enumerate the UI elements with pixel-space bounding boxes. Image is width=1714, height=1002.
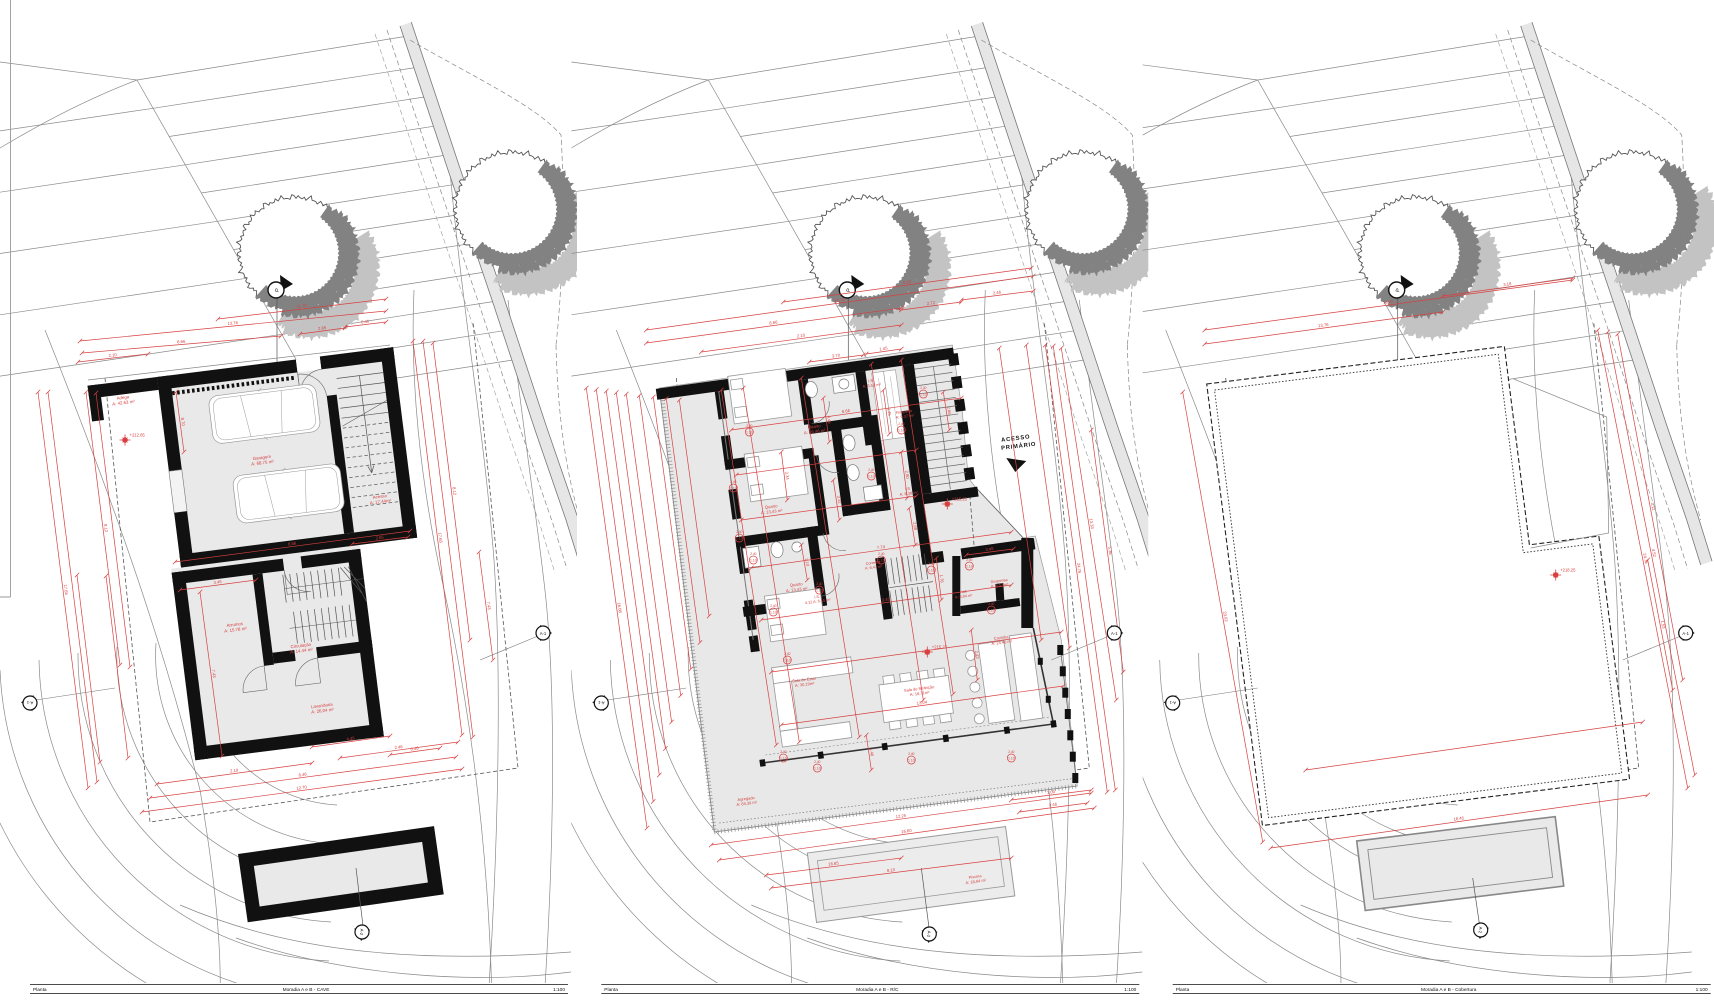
- svg-text:2.40: 2.40: [908, 752, 914, 756]
- svg-text:Moradia A e B - CAVE: Moradia A e B - CAVE: [283, 987, 330, 993]
- svg-text:A-1: A-1: [26, 700, 34, 706]
- svg-text:1.76: 1.76: [939, 574, 945, 583]
- svg-text:2.40: 2.40: [736, 530, 742, 534]
- svg-text:Planta: Planta: [604, 987, 618, 993]
- svg-text:1.10: 1.10: [750, 559, 757, 563]
- svg-text:A-2: A-2: [1478, 927, 1484, 935]
- svg-text:A-2: A-2: [926, 931, 932, 939]
- svg-text:Planta: Planta: [33, 987, 47, 993]
- svg-text:1:100: 1:100: [553, 987, 565, 993]
- svg-text:1.10: 1.10: [898, 429, 905, 433]
- svg-text:A-1: A-1: [1169, 700, 1177, 706]
- svg-text:1.10: 1.10: [780, 757, 787, 761]
- svg-text:2.40: 2.40: [1008, 750, 1014, 754]
- svg-text:1.10: 1.10: [770, 611, 777, 615]
- svg-text:A-1: A-1: [540, 631, 547, 636]
- svg-text:0.46: 0.46: [361, 318, 370, 324]
- svg-text:1.10: 1.10: [878, 559, 885, 563]
- svg-text:1:100: 1:100: [1124, 987, 1136, 993]
- svg-text:2.40: 2.40: [966, 558, 972, 562]
- svg-text:Moradia A e B - R/C: Moradia A e B - R/C: [856, 987, 899, 993]
- svg-text:+212.65: +212.65: [130, 433, 146, 438]
- svg-text:1.10: 1.10: [988, 609, 995, 613]
- svg-text:2.40: 2.40: [988, 602, 994, 606]
- svg-text:1.10: 1.10: [928, 569, 935, 573]
- svg-text:2.40: 2.40: [780, 750, 786, 754]
- svg-text:1.10: 1.10: [966, 565, 973, 569]
- svg-text:1.10: 1.10: [920, 393, 927, 397]
- svg-text:2.40: 2.40: [750, 552, 756, 556]
- svg-text:2.40: 2.40: [920, 386, 926, 390]
- svg-text:2.40: 2.40: [730, 480, 736, 484]
- svg-text:1.10: 1.10: [746, 431, 753, 435]
- svg-text:2.40: 2.40: [770, 604, 776, 608]
- svg-text:A-1: A-1: [1111, 631, 1118, 636]
- svg-text:2.40: 2.40: [928, 562, 934, 566]
- svg-text:1.10: 1.10: [814, 767, 821, 771]
- svg-text:2.40: 2.40: [868, 468, 874, 472]
- svg-text:1.10: 1.10: [816, 589, 823, 593]
- svg-text:1.10: 1.10: [868, 475, 875, 479]
- svg-text:2.43: 2.43: [974, 650, 980, 659]
- svg-text:2.40: 2.40: [898, 422, 904, 426]
- svg-text:1.10: 1.10: [736, 537, 743, 541]
- svg-text:2.40: 2.40: [814, 760, 820, 764]
- svg-text:A-1: A-1: [597, 700, 605, 706]
- svg-text:1.10: 1.10: [908, 759, 915, 763]
- svg-text:+218.25: +218.25: [1560, 568, 1576, 573]
- svg-text:2.40: 2.40: [746, 424, 752, 428]
- svg-text:Planta: Planta: [1176, 987, 1190, 993]
- svg-text:1.10: 1.10: [784, 659, 791, 663]
- svg-text:1.10: 1.10: [730, 487, 737, 491]
- svg-text:2.40: 2.40: [878, 552, 884, 556]
- svg-text:8.66: 8.66: [177, 339, 186, 345]
- svg-text:1:100: 1:100: [1696, 987, 1708, 993]
- svg-text:A-1: A-1: [1682, 631, 1689, 636]
- svg-text:2.10: 2.10: [108, 352, 117, 358]
- svg-text:2.40: 2.40: [816, 582, 822, 586]
- svg-text:1.10: 1.10: [1008, 757, 1015, 761]
- svg-text:Moradia A e B - Cobertura: Moradia A e B - Cobertura: [1421, 987, 1477, 993]
- svg-text:A-2: A-2: [359, 929, 365, 937]
- svg-text:+215,25: +215,25: [952, 497, 968, 502]
- svg-text:2.40: 2.40: [784, 652, 790, 656]
